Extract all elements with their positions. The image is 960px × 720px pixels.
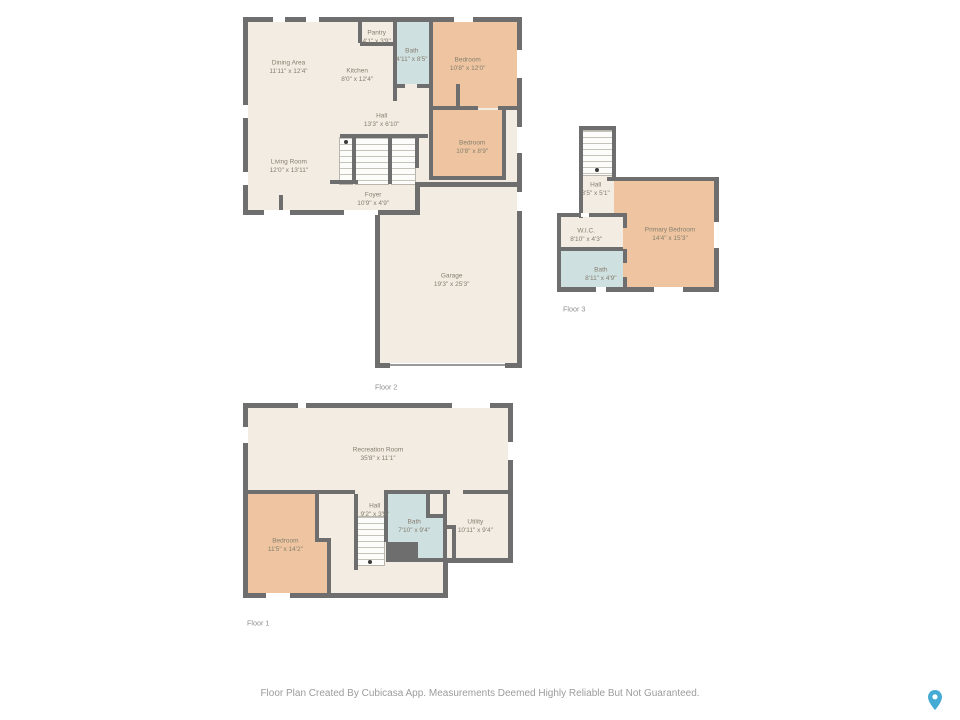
- wall: [443, 525, 456, 529]
- floor-plan-canvas: Dining Area11'11" x 12'4" Kitchen8'0" x …: [0, 0, 960, 720]
- room-label-living-room: Living Room12'0" x 13'11": [270, 157, 309, 174]
- wall: [327, 542, 331, 595]
- bedroom-area: [247, 494, 315, 540]
- wall: [429, 110, 433, 180]
- window: [262, 210, 292, 215]
- window: [450, 403, 492, 408]
- room-label-bedroom: Bedroom11'5" x 14'2": [267, 536, 302, 553]
- wall: [557, 213, 627, 217]
- door-opening: [594, 287, 608, 292]
- wall: [623, 277, 627, 288]
- window: [517, 48, 522, 80]
- wall: [561, 247, 623, 251]
- wall: [452, 525, 456, 558]
- room-label-recreation-room: Recreation Room35'8" x 11'1": [353, 445, 403, 462]
- wall: [579, 126, 583, 218]
- room-label-pantry: Pantry4'1" x 3'9": [363, 28, 391, 45]
- wall: [417, 84, 429, 88]
- window: [304, 17, 321, 22]
- wall: [418, 558, 443, 562]
- wall: [354, 494, 358, 570]
- room-label-hall: Hall13'3" x 6'10": [364, 111, 400, 128]
- wall: [429, 176, 506, 180]
- wall: [579, 126, 616, 130]
- staircase: [392, 138, 415, 184]
- window: [517, 190, 522, 213]
- wall: [420, 182, 517, 187]
- room-label-foyer: Foyer10'9" x 4'9": [357, 190, 389, 207]
- wall: [352, 138, 356, 184]
- wall: [330, 180, 358, 184]
- wall: [426, 494, 430, 516]
- wall: [508, 403, 513, 563]
- wall: [623, 249, 627, 263]
- room-label-utility: Utility10'11" x 9'4": [457, 517, 492, 534]
- room-label-kitchen: Kitchen8'0" x 12'4": [341, 66, 373, 83]
- wall: [384, 490, 450, 494]
- wall: [393, 84, 405, 88]
- window: [243, 170, 248, 187]
- wall: [243, 490, 355, 494]
- wall: [443, 558, 448, 598]
- staircase: [356, 138, 388, 184]
- stair-arrow-dot: [344, 140, 348, 144]
- room-label-bath: Bath4'11" x 8'5": [396, 46, 427, 63]
- wall: [415, 138, 419, 168]
- window: [714, 220, 719, 250]
- room-label-wic: W.I.C.8'10" x 4'3": [570, 226, 602, 243]
- room-label-dining-area: Dining Area11'11" x 12'4": [270, 58, 308, 75]
- room-label-bedroom: Bedroom10'8" x 8'9": [456, 138, 488, 155]
- wall: [429, 17, 433, 110]
- room-label-bath: Bath7'10" x 9'4": [398, 517, 430, 534]
- garage-door-line: [390, 364, 505, 366]
- window: [264, 593, 292, 598]
- window: [243, 425, 248, 445]
- wall: [498, 106, 517, 110]
- wall: [375, 215, 380, 368]
- window: [296, 403, 308, 408]
- staircase: [358, 517, 384, 565]
- window: [271, 17, 287, 22]
- wall: [557, 287, 719, 292]
- room-label-bedroom: Bedroom10'8" x 12'0": [450, 55, 486, 72]
- wall: [443, 558, 513, 563]
- window: [452, 17, 475, 22]
- wall: [502, 110, 506, 180]
- room-label-bath: Bath8'11" x 4'9": [585, 265, 616, 282]
- wall: [315, 494, 319, 542]
- stair-arrow-dot: [595, 168, 599, 172]
- room-label-hall: Hall9'2" x 3'5": [361, 501, 389, 518]
- room-label-hall: Hall3'5" x 5'1": [582, 180, 610, 197]
- floor-2-label: Floor 2: [375, 383, 397, 391]
- wall: [463, 490, 513, 494]
- window: [517, 125, 522, 155]
- window: [243, 103, 248, 120]
- door-opening: [579, 213, 591, 217]
- wall: [388, 138, 392, 184]
- front-door-opening: [342, 210, 380, 215]
- location-pin-icon: [928, 690, 942, 710]
- floor-3-label: Floor 3: [563, 305, 585, 313]
- wall: [623, 213, 627, 228]
- wall: [612, 126, 616, 181]
- floor-1-label: Floor 1: [247, 619, 269, 627]
- stair-arrow-dot: [368, 560, 372, 564]
- wall: [358, 17, 362, 43]
- wall: [456, 106, 478, 110]
- room-label-garage: Garage19'3" x 25'3": [434, 271, 470, 288]
- window: [652, 287, 685, 292]
- window: [508, 440, 513, 462]
- disclaimer-text: Floor Plan Created By Cubicasa App. Meas…: [0, 688, 960, 699]
- wall-block: [386, 542, 418, 562]
- wall: [557, 213, 561, 292]
- wall: [607, 177, 719, 181]
- staircase: [340, 138, 352, 184]
- room-label-primary-bedroom: Primary Bedroom14'4" x 15'3": [645, 225, 695, 242]
